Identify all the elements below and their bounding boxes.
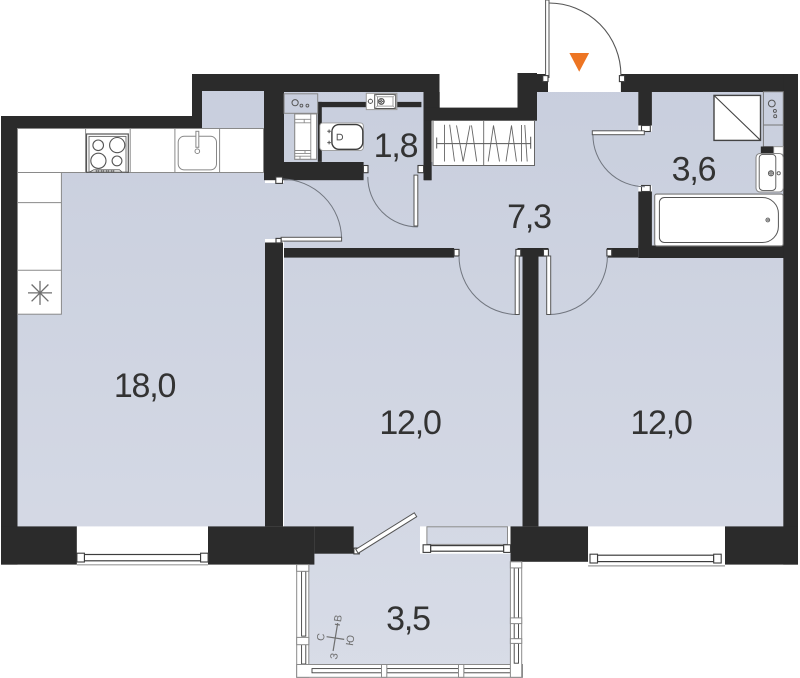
svg-text:7,3: 7,3 xyxy=(507,198,551,236)
svg-text:12,0: 12,0 xyxy=(379,404,441,442)
svg-text:3,6: 3,6 xyxy=(672,151,716,189)
svg-text:18,0: 18,0 xyxy=(114,367,176,405)
svg-text:12,0: 12,0 xyxy=(630,404,692,442)
svg-text:1,8: 1,8 xyxy=(374,127,418,165)
svg-text:3,5: 3,5 xyxy=(386,600,430,638)
